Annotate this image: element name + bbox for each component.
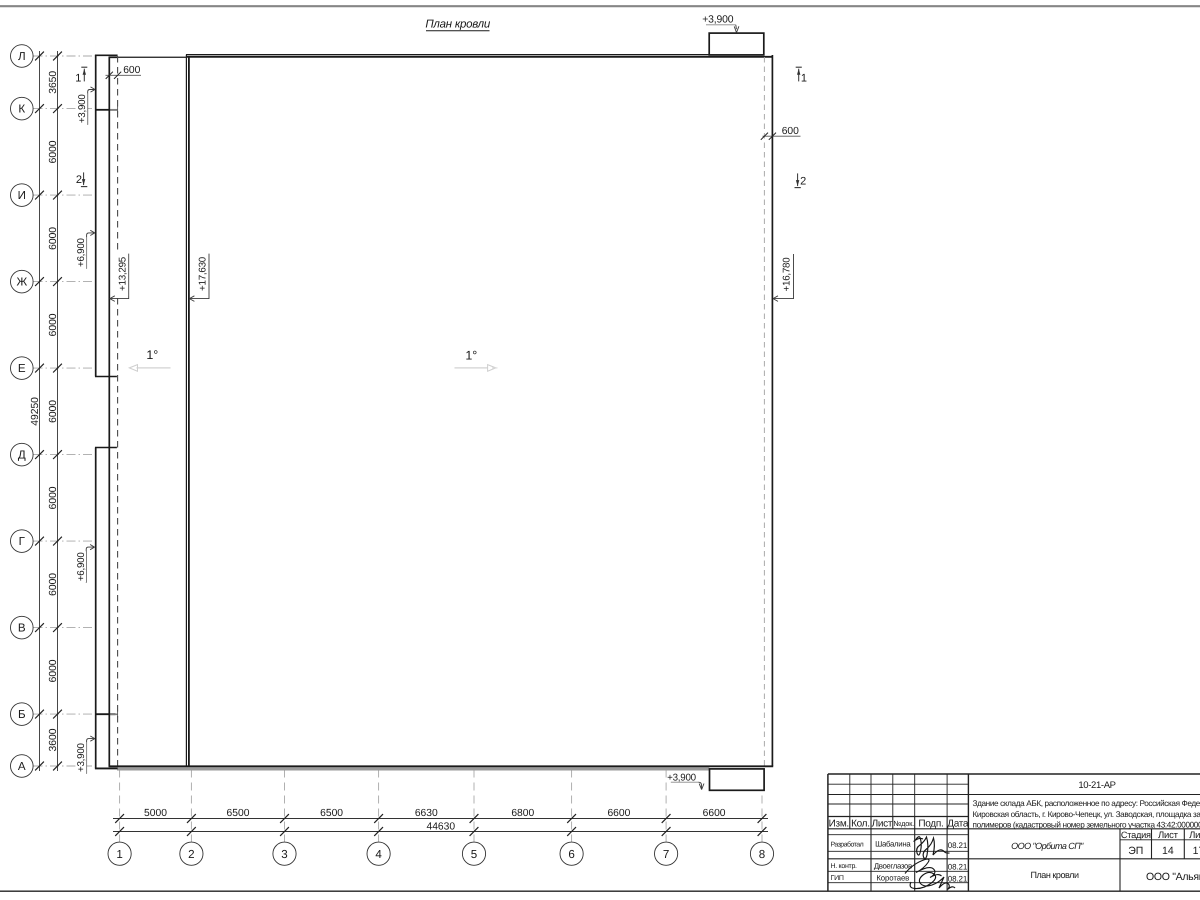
svg-text:А: А: [18, 760, 26, 773]
svg-text:№док.: №док.: [893, 819, 914, 828]
svg-text:Коротаев: Коротаев: [876, 873, 909, 882]
svg-text:2: 2: [800, 176, 806, 188]
svg-text:+3,900: +3,900: [702, 15, 734, 26]
svg-text:Изм.: Изм.: [829, 818, 849, 829]
svg-text:49250: 49250: [30, 397, 41, 426]
svg-text:7: 7: [663, 848, 669, 861]
svg-text:Дата: Дата: [947, 818, 969, 829]
svg-text:4: 4: [375, 848, 382, 861]
svg-text:Подп.: Подп.: [918, 818, 943, 829]
svg-text:Лист: Лист: [872, 818, 893, 829]
svg-text:+6,900: +6,900: [76, 237, 87, 267]
svg-text:Г: Г: [19, 535, 26, 548]
svg-text:Ж: Ж: [16, 276, 27, 289]
svg-text:6000: 6000: [48, 573, 59, 596]
svg-text:6500: 6500: [320, 808, 343, 819]
svg-text:ЭП: ЭП: [1128, 845, 1143, 857]
svg-text:5000: 5000: [144, 808, 167, 819]
svg-text:Разработал: Разработал: [831, 840, 864, 848]
svg-text:1: 1: [116, 848, 122, 861]
svg-text:Двоеглазов: Двоеглазов: [874, 862, 912, 871]
svg-text:6800: 6800: [511, 808, 534, 819]
svg-text:08.21: 08.21: [948, 863, 968, 872]
svg-text:+16,780: +16,780: [782, 257, 793, 292]
svg-text:6000: 6000: [48, 486, 59, 509]
svg-text:6000: 6000: [48, 313, 59, 336]
svg-text:5: 5: [471, 848, 477, 861]
svg-text:Б: Б: [18, 708, 26, 721]
svg-text:План кровли: План кровли: [1030, 870, 1078, 880]
svg-text:+6,900: +6,900: [76, 552, 87, 582]
svg-text:+3,900: +3,900: [667, 772, 697, 783]
svg-text:600: 600: [123, 65, 140, 76]
svg-text:+3,900: +3,900: [76, 742, 87, 772]
svg-text:полимеров (кадастровый номер з: полимеров (кадастровый номер земельного …: [973, 820, 1200, 829]
svg-text:Здание склада АБК, расположенн: Здание склада АБК, расположенное по адре…: [973, 799, 1200, 808]
svg-text:2: 2: [76, 174, 82, 186]
svg-text:2: 2: [188, 848, 194, 861]
svg-text:3: 3: [281, 848, 287, 861]
svg-text:Шабалина: Шабалина: [875, 840, 911, 849]
svg-text:1: 1: [801, 73, 807, 85]
svg-text:ООО "Альянс": ООО "Альянс": [1146, 871, 1200, 883]
svg-text:ООО "Орбита СП": ООО "Орбита СП": [1011, 841, 1084, 851]
svg-text:+13,295: +13,295: [118, 256, 129, 291]
svg-text:ГИП: ГИП: [831, 875, 844, 882]
svg-text:Кол.: Кол.: [851, 818, 870, 829]
svg-text:Лист: Лист: [1158, 830, 1179, 841]
svg-text:Кировская область, г. Кирово-Ч: Кировская область, г. Кирово-Чепецк, ул.…: [973, 810, 1200, 819]
svg-text:+17,630: +17,630: [198, 256, 209, 291]
svg-text:Д: Д: [18, 449, 26, 462]
svg-text:6500: 6500: [227, 808, 250, 819]
svg-text:08.21: 08.21: [948, 841, 968, 850]
svg-text:Стадия: Стадия: [1121, 830, 1151, 840]
svg-text:8: 8: [759, 848, 765, 861]
svg-text:600: 600: [782, 126, 799, 137]
svg-text:10-21-АР: 10-21-АР: [1078, 780, 1115, 791]
svg-text:6600: 6600: [607, 808, 630, 819]
svg-text:Н. контр.: Н. контр.: [831, 863, 858, 870]
svg-text:6600: 6600: [703, 808, 726, 819]
svg-text:К: К: [18, 103, 25, 116]
svg-text:1°: 1°: [146, 348, 158, 362]
svg-text:6000: 6000: [48, 400, 59, 423]
svg-text:3650: 3650: [48, 71, 59, 94]
svg-text:3600: 3600: [48, 728, 59, 751]
svg-text:+3,900: +3,900: [77, 94, 88, 124]
svg-text:1: 1: [75, 73, 81, 85]
svg-text:6630: 6630: [415, 808, 438, 819]
svg-text:Е: Е: [18, 362, 26, 375]
svg-text:1°: 1°: [465, 348, 477, 362]
svg-text:Л: Л: [18, 50, 26, 63]
svg-text:6: 6: [568, 848, 574, 861]
svg-text:Лист: Лист: [1189, 830, 1200, 841]
svg-text:6000: 6000: [48, 227, 59, 250]
svg-text:6000: 6000: [48, 140, 59, 163]
svg-text:В: В: [18, 622, 26, 635]
svg-text:14: 14: [1162, 845, 1174, 857]
svg-text:08.21: 08.21: [948, 874, 968, 883]
svg-text:И: И: [18, 189, 26, 202]
svg-text:44630: 44630: [426, 822, 455, 833]
svg-text:6000: 6000: [48, 659, 59, 682]
svg-text:17: 17: [1193, 845, 1200, 857]
svg-text:План кровли: План кровли: [425, 19, 491, 31]
